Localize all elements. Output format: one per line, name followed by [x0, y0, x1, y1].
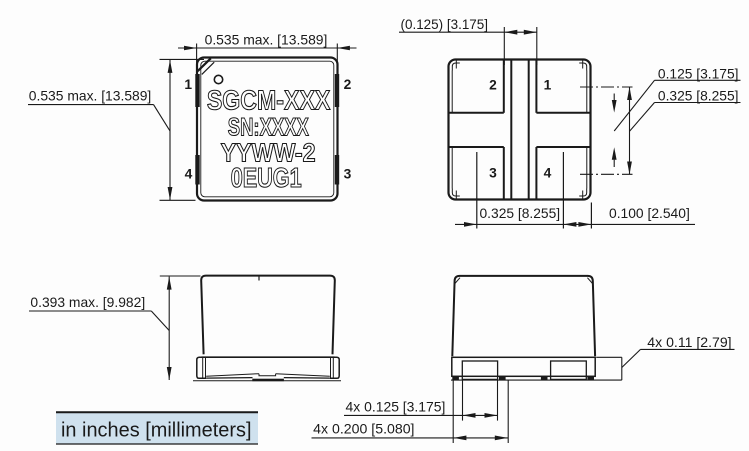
svg-text:4x 0.200 [5.080]: 4x 0.200 [5.080]: [313, 422, 414, 437]
svg-text:4x 0.11 [2.79]: 4x 0.11 [2.79]: [647, 335, 731, 350]
svg-text:4: 4: [185, 167, 193, 182]
svg-text:3: 3: [344, 167, 352, 182]
svg-text:2: 2: [489, 78, 497, 93]
svg-text:3: 3: [489, 166, 497, 181]
svg-text:0.325 [8.255]: 0.325 [8.255]: [658, 89, 739, 104]
svg-text:4: 4: [544, 166, 552, 181]
svg-text:0.535 max. [13.589]: 0.535 max. [13.589]: [205, 33, 328, 48]
svg-text:SGCM-XXX: SGCM-XXX: [207, 84, 331, 115]
svg-text:0.100 [2.540]: 0.100 [2.540]: [609, 206, 690, 221]
svg-text:2: 2: [344, 77, 352, 92]
svg-text:in inches [millimeters]: in inches [millimeters]: [61, 418, 252, 441]
svg-text:(0.125) [3.175]: (0.125) [3.175]: [401, 17, 489, 32]
svg-text:0.393 max. [9.982]: 0.393 max. [9.982]: [30, 295, 145, 310]
svg-text:SN:XXXX: SN:XXXX: [228, 114, 309, 142]
svg-text:0.325 [8.255]: 0.325 [8.255]: [480, 206, 561, 221]
svg-text:4x 0.125 [3.175]: 4x 0.125 [3.175]: [346, 400, 446, 415]
svg-text:0.535 max. [13.589]: 0.535 max. [13.589]: [29, 88, 152, 103]
svg-text:1: 1: [544, 78, 552, 93]
svg-text:0EUG1: 0EUG1: [231, 162, 302, 193]
svg-text:0.125 [3.175]: 0.125 [3.175]: [658, 67, 739, 82]
svg-text:1: 1: [184, 77, 192, 92]
